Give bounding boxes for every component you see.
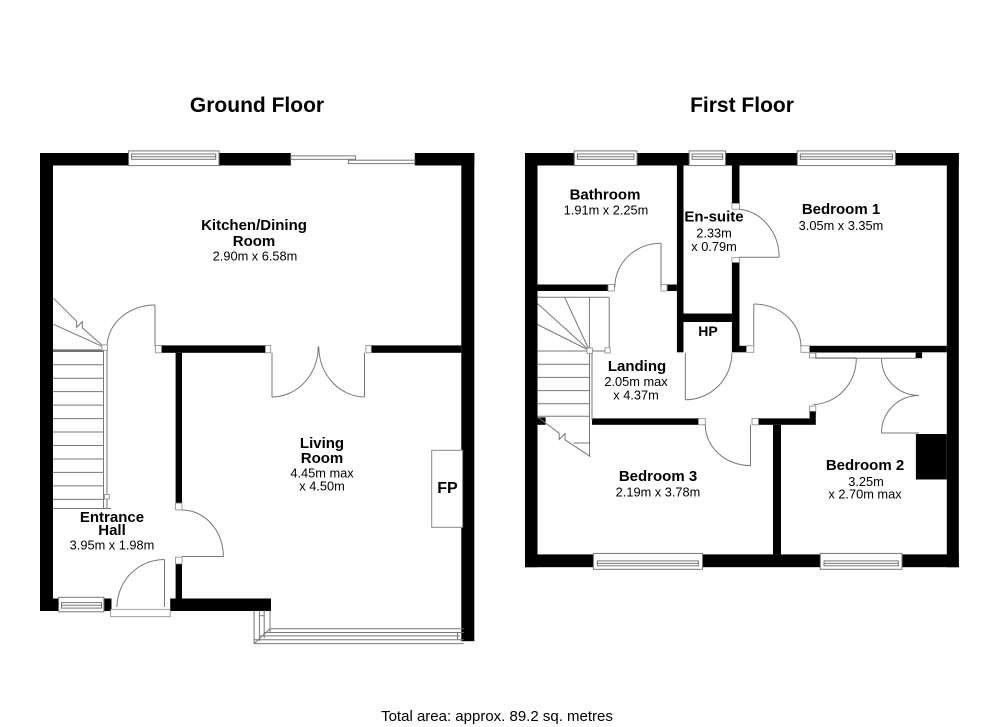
svg-text:3.05m x 3.35m: 3.05m x 3.35m	[799, 218, 884, 233]
svg-text:Bedroom 2: Bedroom 2	[826, 457, 904, 474]
svg-text:Bedroom 1: Bedroom 1	[802, 201, 880, 218]
svg-text:Bathroom: Bathroom	[570, 187, 641, 204]
svg-text:1.91m x 2.25m: 1.91m x 2.25m	[564, 202, 649, 217]
svg-text:Total area: approx. 89.2 sq. m: Total area: approx. 89.2 sq. metres	[381, 708, 613, 725]
svg-text:Bedroom 3: Bedroom 3	[619, 468, 697, 485]
svg-text:x 4.50m: x 4.50m	[299, 478, 345, 493]
svg-text:Kitchen/Dining: Kitchen/Dining	[201, 217, 307, 234]
svg-text:3.95m x 1.98m: 3.95m x 1.98m	[70, 537, 155, 552]
svg-text:FP: FP	[437, 480, 458, 497]
svg-text:Landing: Landing	[608, 358, 666, 375]
svg-text:First Floor: First Floor	[690, 94, 794, 117]
svg-text:2.90m x 6.58m: 2.90m x 6.58m	[213, 248, 298, 263]
svg-text:x 4.37m: x 4.37m	[613, 387, 659, 402]
svg-text:Ground Floor: Ground Floor	[190, 94, 324, 117]
svg-text:En-suite: En-suite	[684, 209, 743, 226]
svg-text:x 2.70m max: x 2.70m max	[828, 486, 902, 501]
svg-text:2.19m x 3.78m: 2.19m x 3.78m	[616, 484, 701, 499]
svg-text:HP: HP	[698, 323, 717, 339]
svg-text:x 0.79m: x 0.79m	[691, 239, 737, 254]
